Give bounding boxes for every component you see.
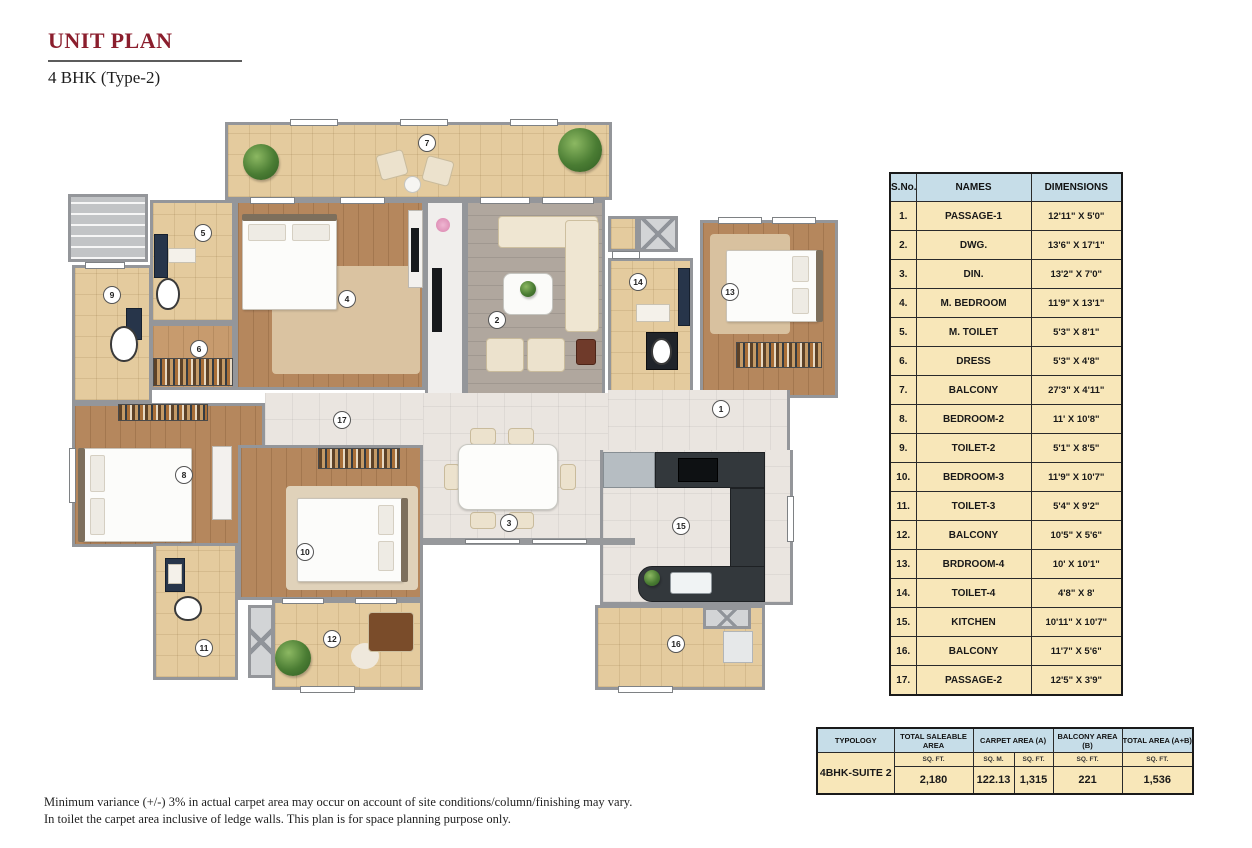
room-name-cell: DRESS bbox=[916, 347, 1031, 376]
room-name-cell: DWG. bbox=[916, 231, 1031, 260]
area-table-header-row: TYPOLOGYTOTAL SALEABLE AREACARPET AREA (… bbox=[817, 728, 1193, 753]
room-dimension-cell: 11'7" X 5'6" bbox=[1031, 637, 1122, 666]
room-sno-cell: 14. bbox=[890, 579, 916, 608]
room-marker-16: 16 bbox=[667, 635, 685, 653]
room-dimension-cell: 5'4" X 9'2" bbox=[1031, 492, 1122, 521]
rooms-table-header-2: DIMENSIONS bbox=[1031, 173, 1122, 202]
window-mark bbox=[532, 539, 587, 544]
area-value-cell: 221 bbox=[1053, 767, 1122, 795]
window-mark bbox=[465, 539, 520, 544]
furniture-cwhite bbox=[168, 564, 182, 584]
furniture-pillow bbox=[378, 505, 394, 535]
furniture-wc bbox=[651, 338, 672, 365]
window-mark bbox=[618, 686, 673, 693]
room-name-cell: BEDROOM-3 bbox=[916, 463, 1031, 492]
furniture-wardrobe bbox=[153, 358, 233, 386]
room-marker-15: 15 bbox=[672, 517, 690, 535]
window-mark bbox=[400, 119, 448, 126]
room-sno-cell: 3. bbox=[890, 260, 916, 289]
room-marker-11: 11 bbox=[195, 639, 213, 657]
area-table-header-0: TYPOLOGY bbox=[817, 728, 894, 753]
disclaimer: Minimum variance (+/-) 3% in actual carp… bbox=[44, 794, 632, 827]
room-name-cell: TOILET-4 bbox=[916, 579, 1031, 608]
area-unit-cell: SQ. FT. bbox=[1053, 753, 1122, 767]
furniture-plant bbox=[275, 640, 311, 676]
room-shaft-closet bbox=[608, 216, 638, 252]
window-mark bbox=[510, 119, 558, 126]
area-summary-table-wrap: TYPOLOGYTOTAL SALEABLE AREACARPET AREA (… bbox=[816, 727, 1194, 795]
unit-plan-page: UNIT PLAN 4 BHK (Type-2) 123456789101112… bbox=[0, 0, 1252, 848]
furniture-pillow bbox=[90, 455, 105, 492]
page-title: UNIT PLAN bbox=[48, 28, 242, 62]
room-sno-cell: 5. bbox=[890, 318, 916, 347]
room-passage-1 bbox=[608, 390, 790, 454]
furniture-sofa bbox=[565, 220, 599, 332]
table-row: 6.DRESS5'3" X 4'8" bbox=[890, 347, 1122, 376]
room-dimension-cell: 10'11" X 10'7" bbox=[1031, 608, 1122, 637]
furniture-flower bbox=[436, 218, 450, 232]
table-row: 11.TOILET-35'4" X 9'2" bbox=[890, 492, 1122, 521]
room-dimension-cell: 4'8" X 8' bbox=[1031, 579, 1122, 608]
room-sno-cell: 2. bbox=[890, 231, 916, 260]
area-value-cell: 122.13 bbox=[973, 767, 1014, 795]
room-dimension-cell: 12'11" X 5'0" bbox=[1031, 202, 1122, 231]
furniture-pillow bbox=[378, 541, 394, 571]
room-name-cell: PASSAGE-2 bbox=[916, 666, 1031, 696]
room-sno-cell: 11. bbox=[890, 492, 916, 521]
room-sno-cell: 9. bbox=[890, 434, 916, 463]
furniture-vanity bbox=[154, 234, 168, 278]
area-table-header-2: CARPET AREA (A) bbox=[973, 728, 1053, 753]
furniture-plant bbox=[644, 570, 660, 586]
furniture-cwhite bbox=[636, 304, 670, 322]
room-dimension-cell: 10' X 10'1" bbox=[1031, 550, 1122, 579]
furniture-wardrobe bbox=[318, 448, 400, 469]
room-name-cell: BALCONY bbox=[916, 637, 1031, 666]
furniture-fridge bbox=[603, 452, 655, 488]
room-marker-7: 7 bbox=[418, 134, 436, 152]
room-sno-cell: 12. bbox=[890, 521, 916, 550]
room-dimension-cell: 12'5" X 3'9" bbox=[1031, 666, 1122, 696]
table-row: 3.DIN.13'2" X 7'0" bbox=[890, 260, 1122, 289]
furniture-dtable bbox=[458, 444, 558, 510]
room-lobby-stairs bbox=[68, 194, 148, 262]
furniture-hb bbox=[78, 448, 85, 542]
room-marker-2: 2 bbox=[488, 311, 506, 329]
table-row: 1.PASSAGE-112'11" X 5'0" bbox=[890, 202, 1122, 231]
furniture-counter bbox=[730, 488, 765, 572]
furniture-vanity bbox=[678, 268, 690, 326]
room-sno-cell: 15. bbox=[890, 608, 916, 637]
room-dimension-cell: 5'1" X 8'5" bbox=[1031, 434, 1122, 463]
area-unit-cell: SQ. FT. bbox=[1014, 753, 1053, 767]
furniture-tround bbox=[404, 176, 421, 193]
furniture-hob bbox=[678, 458, 718, 482]
room-dimension-cell: 13'2" X 7'0" bbox=[1031, 260, 1122, 289]
room-sno-cell: 13. bbox=[890, 550, 916, 579]
window-mark bbox=[300, 686, 355, 693]
table-row: 15.KITCHEN10'11" X 10'7" bbox=[890, 608, 1122, 637]
room-name-cell: TOILET-2 bbox=[916, 434, 1031, 463]
furniture-wardrobe bbox=[118, 404, 208, 421]
window-mark bbox=[612, 251, 640, 259]
rooms-table-header-row: S.No.NAMESDIMENSIONS bbox=[890, 173, 1122, 202]
table-row: 10.BEDROOM-311'9" X 10'7" bbox=[890, 463, 1122, 492]
room-marker-6: 6 bbox=[190, 340, 208, 358]
furniture-cwhite bbox=[168, 248, 196, 263]
furniture-box bbox=[723, 631, 753, 663]
window-mark bbox=[787, 496, 794, 542]
furniture-chair bbox=[560, 464, 576, 490]
room-marker-12: 12 bbox=[323, 630, 341, 648]
room-dimension-cell: 5'3" X 4'8" bbox=[1031, 347, 1122, 376]
furniture-plant bbox=[520, 281, 536, 297]
room-name-cell: BRDROOM-4 bbox=[916, 550, 1031, 579]
room-marker-9: 9 bbox=[103, 286, 121, 304]
furniture-plant bbox=[558, 128, 602, 172]
room-marker-14: 14 bbox=[629, 273, 647, 291]
area-unit-cell: SQ. M. bbox=[973, 753, 1014, 767]
window-mark bbox=[718, 217, 762, 224]
window-mark bbox=[290, 119, 338, 126]
room-sno-cell: 4. bbox=[890, 289, 916, 318]
page-subtitle: 4 BHK (Type-2) bbox=[48, 68, 242, 88]
table-row: 9.TOILET-25'1" X 8'5" bbox=[890, 434, 1122, 463]
room-sno-cell: 1. bbox=[890, 202, 916, 231]
room-marker-8: 8 bbox=[175, 466, 193, 484]
room-sno-cell: 10. bbox=[890, 463, 916, 492]
room-marker-4: 4 bbox=[338, 290, 356, 308]
table-row: 7.BALCONY27'3" X 4'11" bbox=[890, 376, 1122, 405]
room-name-cell: BALCONY bbox=[916, 521, 1031, 550]
room-marker-13: 13 bbox=[721, 283, 739, 301]
room-marker-5: 5 bbox=[194, 224, 212, 242]
table-row: 13.BRDROOM-410' X 10'1" bbox=[890, 550, 1122, 579]
area-table-header-4: TOTAL AREA (A+B) bbox=[1122, 728, 1193, 753]
furniture-wc bbox=[156, 278, 180, 310]
window-mark bbox=[480, 197, 530, 204]
furniture-plant bbox=[243, 144, 279, 180]
furniture-pillow bbox=[792, 288, 809, 314]
room-dimension-cell: 27'3" X 4'11" bbox=[1031, 376, 1122, 405]
rooms-table-header-0: S.No. bbox=[890, 173, 916, 202]
furniture-chair bbox=[486, 338, 524, 372]
room-marker-10: 10 bbox=[296, 543, 314, 561]
rooms-table-header-1: NAMES bbox=[916, 173, 1031, 202]
window-mark bbox=[69, 448, 76, 503]
room-name-cell: PASSAGE-1 bbox=[916, 202, 1031, 231]
room-name-cell: KITCHEN bbox=[916, 608, 1031, 637]
area-table-header-1: TOTAL SALEABLE AREA bbox=[894, 728, 973, 753]
window-mark bbox=[772, 217, 816, 224]
table-row: 8.BEDROOM-211' X 10'8" bbox=[890, 405, 1122, 434]
window-mark bbox=[250, 197, 295, 204]
furniture-pillow bbox=[90, 498, 105, 535]
window-mark bbox=[355, 598, 397, 604]
furniture-hb bbox=[401, 498, 408, 582]
rooms-dimensions-table: S.No.NAMESDIMENSIONS 1.PASSAGE-112'11" X… bbox=[889, 172, 1123, 696]
room-name-cell: TOILET-3 bbox=[916, 492, 1031, 521]
table-row: 5.M. TOILET5'3" X 8'1" bbox=[890, 318, 1122, 347]
room-dimension-cell: 13'6" X 17'1" bbox=[1031, 231, 1122, 260]
wall-segment bbox=[423, 538, 635, 545]
room-shaft-1 bbox=[638, 216, 678, 252]
room-sno-cell: 17. bbox=[890, 666, 916, 696]
area-unit-cell: SQ. FT. bbox=[1122, 753, 1193, 767]
room-name-cell: M. TOILET bbox=[916, 318, 1031, 347]
room-name-cell: M. BEDROOM bbox=[916, 289, 1031, 318]
furniture-wc bbox=[110, 326, 138, 362]
furniture-hb bbox=[816, 250, 823, 322]
room-sno-cell: 16. bbox=[890, 637, 916, 666]
furniture-pillow bbox=[792, 256, 809, 282]
typology-value-cell: 4BHK-SUITE 2 bbox=[817, 753, 894, 795]
furniture-hb bbox=[242, 214, 337, 221]
furniture-sofa bbox=[368, 612, 414, 652]
window-mark bbox=[340, 197, 385, 204]
room-dimension-cell: 5'3" X 8'1" bbox=[1031, 318, 1122, 347]
floor-plan: 1234567891011121314151617 bbox=[60, 118, 866, 704]
area-unit-cell: SQ. FT. bbox=[894, 753, 973, 767]
furniture-dresser bbox=[212, 446, 232, 520]
furniture-pillow bbox=[248, 224, 286, 241]
furniture-wardrobe bbox=[736, 342, 822, 368]
furniture-chair bbox=[508, 428, 534, 445]
room-shaft-2 bbox=[703, 607, 751, 629]
furniture-sidetable bbox=[576, 339, 596, 365]
table-row: 14.TOILET-44'8" X 8' bbox=[890, 579, 1122, 608]
window-mark bbox=[85, 262, 125, 269]
room-dimension-cell: 11'9" X 13'1" bbox=[1031, 289, 1122, 318]
area-value-cell: 1,536 bbox=[1122, 767, 1193, 795]
area-value-cell: 2,180 bbox=[894, 767, 973, 795]
table-row: 16.BALCONY11'7" X 5'6" bbox=[890, 637, 1122, 666]
room-dimension-cell: 11' X 10'8" bbox=[1031, 405, 1122, 434]
room-marker-1: 1 bbox=[712, 400, 730, 418]
furniture-wc bbox=[174, 596, 202, 621]
furniture-tv bbox=[411, 228, 419, 272]
room-dimension-cell: 10'5" X 5'6" bbox=[1031, 521, 1122, 550]
area-table-header-3: BALCONY AREA (B) bbox=[1053, 728, 1122, 753]
room-sno-cell: 6. bbox=[890, 347, 916, 376]
room-shaft-3 bbox=[248, 605, 274, 678]
room-dimension-cell: 11'9" X 10'7" bbox=[1031, 463, 1122, 492]
table-row: 17.PASSAGE-212'5" X 3'9" bbox=[890, 666, 1122, 696]
room-marker-3: 3 bbox=[500, 514, 518, 532]
room-sno-cell: 7. bbox=[890, 376, 916, 405]
table-row: 4.M. BEDROOM11'9" X 13'1" bbox=[890, 289, 1122, 318]
room-sno-cell: 8. bbox=[890, 405, 916, 434]
area-value-cell: 1,315 bbox=[1014, 767, 1053, 795]
table-row: 12.BALCONY10'5" X 5'6" bbox=[890, 521, 1122, 550]
room-marker-17: 17 bbox=[333, 411, 351, 429]
area-summary-table: TYPOLOGYTOTAL SALEABLE AREACARPET AREA (… bbox=[816, 727, 1194, 795]
room-name-cell: BEDROOM-2 bbox=[916, 405, 1031, 434]
room-name-cell: DIN. bbox=[916, 260, 1031, 289]
window-mark bbox=[542, 197, 594, 204]
furniture-chair bbox=[527, 338, 565, 372]
rooms-dimensions-table-wrap: S.No.NAMESDIMENSIONS 1.PASSAGE-112'11" X… bbox=[889, 172, 1123, 696]
disclaimer-line-2: In toilet the carpet area inclusive of l… bbox=[44, 811, 632, 828]
window-mark bbox=[282, 598, 324, 604]
disclaimer-line-1: Minimum variance (+/-) 3% in actual carp… bbox=[44, 794, 632, 811]
furniture-chair bbox=[470, 512, 496, 529]
table-row: 2.DWG.13'6" X 17'1" bbox=[890, 231, 1122, 260]
furniture-chair bbox=[470, 428, 496, 445]
room-name-cell: BALCONY bbox=[916, 376, 1031, 405]
furniture-sink bbox=[670, 572, 712, 594]
furniture-tv bbox=[432, 268, 442, 332]
page-header: UNIT PLAN 4 BHK (Type-2) bbox=[48, 28, 242, 88]
furniture-pillow bbox=[292, 224, 330, 241]
area-units-row: 4BHK-SUITE 2SQ. FT.SQ. M.SQ. FT.SQ. FT.S… bbox=[817, 753, 1193, 767]
